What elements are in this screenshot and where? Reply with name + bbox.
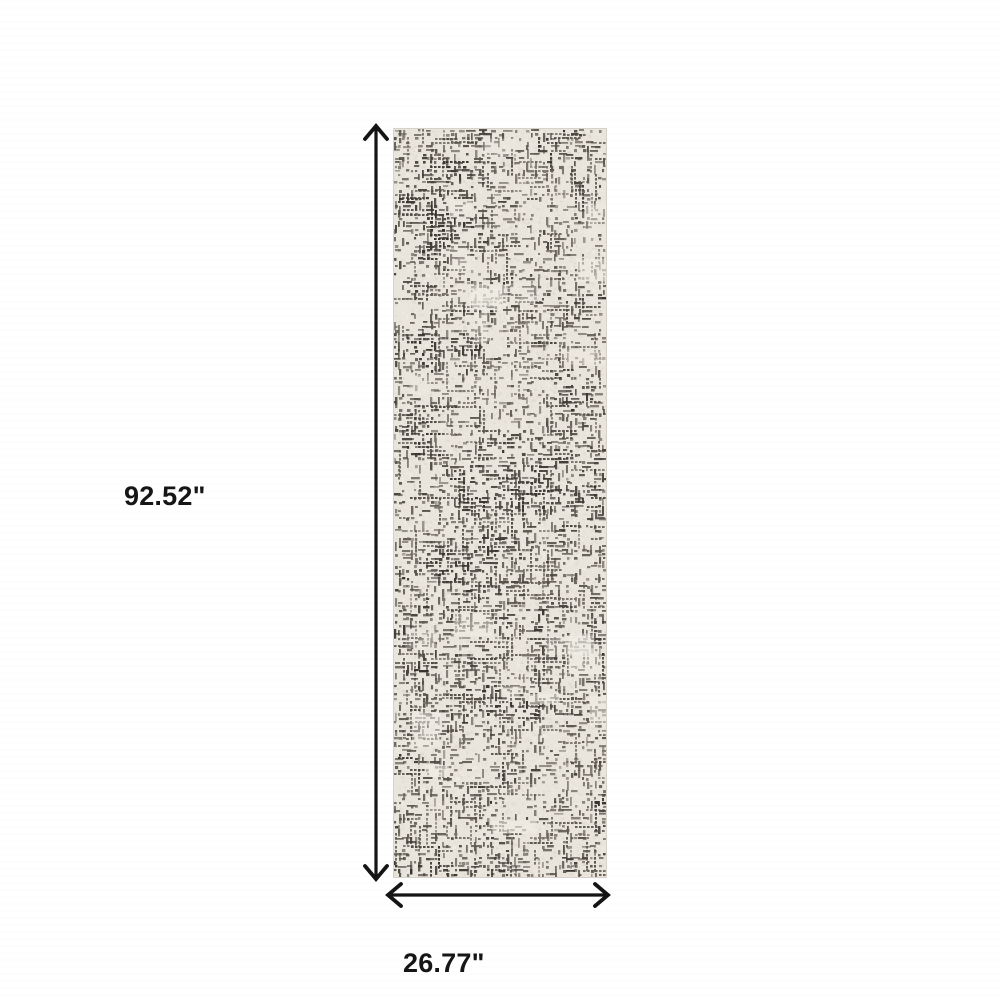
width-dimension-arrow [388, 884, 608, 906]
product-dimension-image: 92.52" 26.77" [0, 0, 1000, 1000]
rug-image [393, 128, 607, 878]
height-dimension-label: 92.52" [124, 481, 206, 512]
rug-texture [394, 129, 606, 877]
height-dimension-arrow [365, 126, 387, 879]
width-dimension-label: 26.77" [403, 948, 485, 979]
